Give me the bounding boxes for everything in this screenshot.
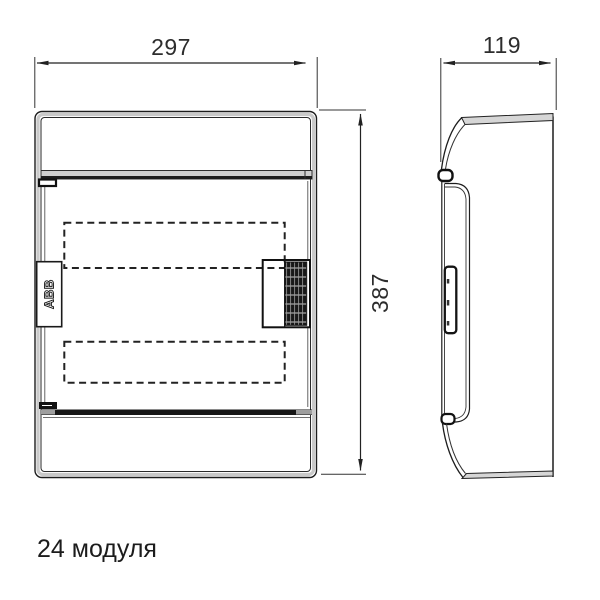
side-door-handle-frame [445, 267, 457, 334]
dim-height: 387 [319, 110, 393, 474]
front-door-bottom-rail-dark [41, 410, 312, 416]
dim-depth-arrow-left [443, 61, 455, 66]
dim-height-arrow-bottom [358, 459, 363, 471]
side-bottom-flare-foot [442, 414, 455, 424]
abb-logo-text: ABB [42, 279, 57, 309]
enclosure-dimension-drawing: ABB [0, 0, 600, 600]
front-door-bottom-rail-gray-right [296, 410, 312, 415]
dim-height-label: 387 [367, 273, 393, 313]
technical-drawing-canvas: ABB [0, 0, 600, 600]
side-bottom-rail [462, 471, 553, 479]
side-door-handle-tick-3 [447, 321, 450, 326]
side-top-flare [439, 118, 466, 181]
dim-depth-arrow-right [539, 61, 551, 66]
side-view [439, 114, 554, 479]
side-door-handle-tick-1 [447, 279, 450, 284]
front-door-bottom-rail-gray-left [41, 410, 55, 415]
side-top-flare-outer [442, 118, 462, 169]
dim-height-arrow-top [358, 114, 363, 126]
side-top-flare-foot [439, 170, 453, 181]
side-door-corner-top-inner [445, 187, 467, 199]
side-door-handle [445, 267, 457, 334]
caption: 24 модуля [37, 535, 157, 563]
front-hinge-bottom [39, 402, 57, 409]
side-door-handle-tick-2 [447, 300, 450, 306]
dim-depth-label: 119 [483, 32, 521, 58]
side-top-flare-inner [446, 125, 466, 170]
front-view: ABB [35, 112, 317, 478]
dim-width: 297 [35, 34, 317, 108]
dim-width-arrow-left [37, 61, 49, 66]
dim-width-label: 297 [151, 34, 191, 60]
abb-logo-plate: ABB [37, 262, 62, 327]
side-top-rail [462, 114, 554, 125]
front-hinge-top [39, 180, 56, 187]
front-door-top-rail [41, 171, 312, 180]
dim-depth: 119 [441, 32, 556, 162]
dim-width-arrow-right [294, 61, 306, 66]
door-latch-hatch [285, 262, 307, 325]
side-bottom-flare [442, 414, 466, 478]
